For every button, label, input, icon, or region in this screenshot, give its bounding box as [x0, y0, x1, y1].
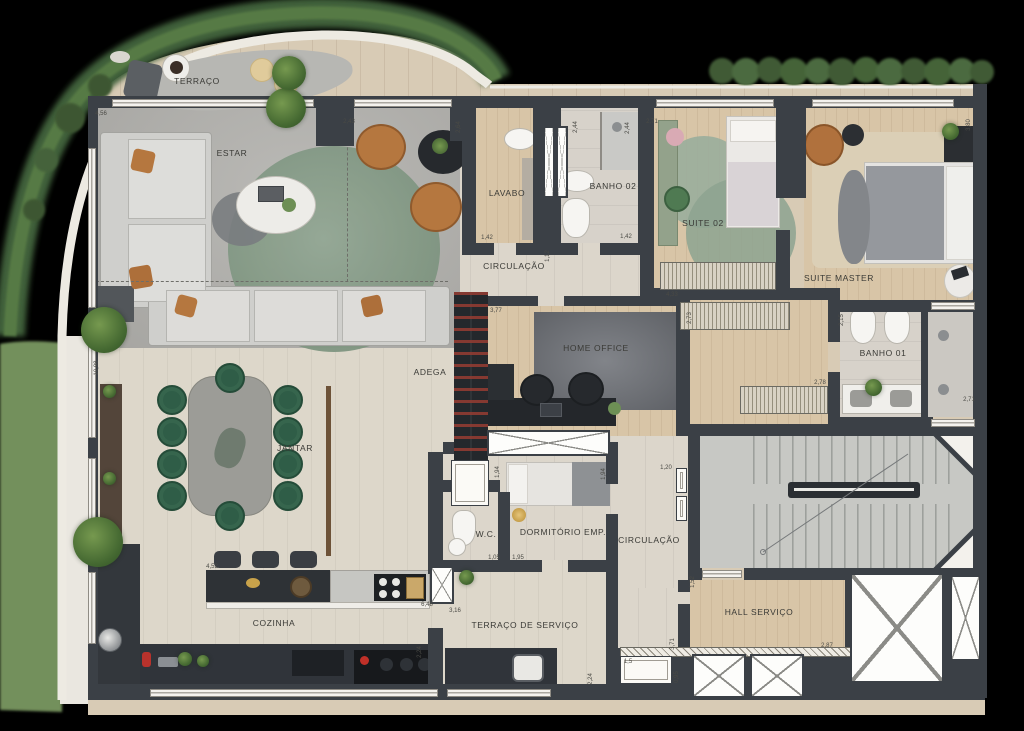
closet-box	[676, 468, 687, 493]
window	[354, 99, 452, 107]
dimension-label: 2,78	[814, 380, 826, 386]
dimension-label: 2,71	[646, 119, 658, 125]
oven-appliance	[406, 577, 424, 599]
plant-icon	[103, 472, 116, 485]
throw-pillow	[130, 148, 156, 174]
elevator-shaft	[692, 654, 746, 698]
dining-chair	[157, 385, 187, 415]
armchair	[356, 124, 406, 170]
window	[702, 570, 742, 578]
dimension-label: 4,33	[666, 292, 678, 298]
dimension-label: 2,87	[821, 643, 833, 649]
dimension-label: 1,12	[545, 250, 551, 262]
office-chair	[520, 374, 554, 406]
master-pillows	[946, 166, 976, 260]
room-label: LAVABO	[489, 188, 525, 198]
room-label: BANHO 02	[590, 181, 637, 191]
master-armchair	[804, 124, 844, 166]
suite02-pillow	[730, 120, 776, 142]
wall	[486, 296, 538, 306]
banho02-shower	[600, 112, 638, 170]
dimension-label: 1,5	[624, 659, 632, 665]
window	[447, 689, 551, 697]
shower-head-icon	[938, 384, 949, 395]
wall	[678, 580, 690, 592]
master-side-table	[842, 124, 864, 146]
lavabo-sink	[504, 128, 536, 150]
room-label: JANTAR	[277, 443, 313, 453]
dimension-label: 2,44	[573, 121, 579, 133]
burner	[379, 578, 387, 586]
counter-edge	[206, 602, 430, 609]
vanity-sink	[890, 390, 912, 407]
wardrobe-hatch	[740, 386, 828, 414]
elevator-shaft	[487, 430, 610, 456]
dimension-label: 4,52	[206, 564, 218, 570]
plant-icon	[865, 379, 882, 396]
room-label: HOME OFFICE	[563, 343, 629, 353]
stool	[290, 551, 317, 568]
wall	[678, 604, 690, 650]
wall	[462, 108, 476, 246]
shower-head-icon	[612, 122, 622, 132]
wall	[606, 514, 618, 596]
coffee-cup	[170, 61, 183, 74]
dimension-label: 1,42	[620, 234, 632, 240]
desk-laptop	[540, 403, 562, 417]
wardrobe-hatch	[660, 262, 776, 290]
wall	[921, 312, 928, 417]
wardrobe-hatch	[680, 302, 790, 330]
room-label: TERRAÇO	[174, 76, 220, 86]
elevator-shaft	[430, 566, 454, 604]
wall	[498, 492, 510, 564]
sofa-bottom-cushion	[342, 290, 426, 342]
dimension-label: 3,77	[490, 308, 502, 314]
plant-icon	[103, 385, 116, 398]
office-chair	[568, 372, 604, 406]
dining-chair	[273, 481, 303, 511]
dimension-label: 2,73	[687, 312, 693, 324]
dimension-label: 4,56	[95, 111, 107, 117]
dining-chair	[157, 417, 187, 447]
dining-chair	[273, 385, 303, 415]
dimension-label: 1,52	[690, 576, 696, 588]
room-label: DORMITÓRIO EMP.	[520, 527, 606, 537]
island-bowl	[290, 576, 312, 598]
closet-box	[451, 460, 489, 506]
plant-icon	[266, 88, 306, 128]
room-label: COZINHA	[253, 618, 295, 628]
dimension-label: 2,24	[588, 673, 594, 685]
dish-rack	[158, 657, 178, 667]
grass-strip	[0, 341, 62, 712]
window	[931, 419, 975, 427]
wall	[606, 452, 618, 484]
elevator-shaft	[950, 575, 981, 661]
dimension-label: 0,95	[674, 671, 680, 683]
dimension-label: 3,80	[966, 119, 972, 131]
suite02-blanket	[728, 162, 778, 226]
dimension-label: 10,98	[94, 360, 100, 375]
dining-chair	[273, 449, 303, 479]
room-label: HALL SERVIÇO	[725, 607, 794, 617]
coffee-table	[236, 176, 316, 234]
dimension-label: 1,20	[660, 465, 672, 471]
pebble	[110, 51, 130, 63]
armchair	[410, 182, 462, 232]
wall	[428, 628, 443, 686]
dimension-label: 2,44	[625, 122, 631, 134]
banho01-toilet	[850, 308, 876, 344]
throw-pillow	[360, 294, 384, 318]
dimension-label: 2,43	[343, 119, 355, 125]
dimension-label: 3,71	[670, 638, 676, 650]
dimension-label: 2,71	[963, 397, 975, 403]
service-sink	[512, 654, 544, 682]
dimension-label: 2,64	[456, 121, 462, 133]
wall	[776, 96, 806, 198]
stool	[252, 551, 279, 568]
window	[656, 99, 774, 107]
table-plant	[282, 198, 296, 212]
dimension-label: 3,16	[449, 608, 461, 614]
room-label: CIRCULAÇÃO	[483, 261, 545, 271]
window	[931, 302, 975, 310]
dimension-label: 1,05	[488, 555, 500, 561]
plant-icon	[81, 307, 127, 353]
dimension-label: 1,95	[512, 555, 524, 561]
side-table-plant	[432, 138, 448, 154]
closet-box	[676, 496, 687, 521]
plant-icon	[73, 517, 123, 567]
office-rug	[534, 312, 676, 410]
terrace-pouf	[250, 58, 274, 82]
floor-plan-canvas: TERRAÇOESTARLAVABOBANHO 02SUITE 02SUITE …	[0, 0, 1024, 731]
desk-plant	[608, 402, 621, 415]
grill-knob-red	[360, 656, 369, 665]
suite02-chair	[664, 186, 690, 212]
wall-tv-block	[292, 650, 344, 676]
window	[150, 689, 438, 697]
plant-icon	[942, 123, 959, 140]
dimension-label: 1,94	[601, 468, 607, 480]
dining-chair	[215, 501, 245, 531]
plant-icon	[178, 652, 192, 666]
plant-icon	[272, 56, 306, 90]
room-label: TERRAÇO DE SERVIÇO	[472, 620, 579, 630]
room-label: BANHO 01	[860, 348, 907, 358]
banho01-bidet	[884, 308, 910, 344]
master-duvet	[866, 166, 944, 260]
room-label: SUITE 02	[682, 218, 724, 228]
bedside-lamp	[512, 508, 526, 522]
wc-sink	[448, 538, 466, 556]
dining-chair	[215, 363, 245, 393]
office-cabinet	[488, 364, 514, 400]
suite02-pouf	[666, 128, 684, 146]
round-sink	[98, 628, 122, 652]
room-divider-pole	[326, 386, 331, 556]
wall	[428, 452, 443, 574]
wall	[688, 436, 700, 570]
plant-icon	[459, 570, 474, 585]
burner	[392, 578, 400, 586]
room-label: ESTAR	[217, 148, 248, 158]
window	[88, 340, 96, 438]
table-books	[258, 186, 284, 202]
dimension-label: 1,94	[495, 466, 501, 478]
grill-burner	[380, 658, 393, 671]
room-label: ADEGA	[414, 367, 447, 377]
wall	[568, 560, 618, 572]
room-label: W.C.	[476, 529, 497, 539]
window	[88, 572, 96, 644]
wall	[510, 560, 542, 572]
wine-rack	[454, 292, 488, 472]
elevator-shaft	[850, 573, 944, 683]
burner	[379, 590, 387, 598]
room-label: SUITE MASTER	[804, 273, 874, 283]
fire-extinguisher	[142, 652, 151, 667]
wall	[462, 243, 494, 255]
maid-bed-pillow	[508, 464, 528, 504]
room-label: CIRCULAÇÃO	[618, 535, 680, 545]
stairwell	[688, 424, 985, 580]
dimension-label: 2,15	[839, 314, 845, 326]
sofa-bottom-cushion	[254, 290, 338, 342]
elevator-shaft	[750, 654, 804, 698]
master-chaise	[838, 170, 870, 264]
elevator-shaft	[543, 126, 555, 198]
wall	[828, 372, 840, 419]
window	[812, 99, 954, 107]
ceiling-projection-line	[96, 281, 448, 282]
throw-pillow	[128, 264, 153, 289]
banho02-toilet	[562, 198, 590, 238]
wall	[776, 230, 790, 290]
dining-chair	[157, 481, 187, 511]
dining-chair	[157, 449, 187, 479]
dimension-label: 1,42	[481, 235, 493, 241]
grill-burner	[400, 658, 413, 671]
window	[88, 148, 96, 308]
dimension-label: 6,48	[421, 602, 433, 608]
island-deco	[246, 578, 260, 588]
plant-icon	[197, 655, 209, 667]
dimension-label: 2,24	[417, 646, 423, 658]
shower-head-icon	[938, 330, 949, 341]
elevator-shaft	[556, 126, 568, 198]
burner	[392, 590, 400, 598]
